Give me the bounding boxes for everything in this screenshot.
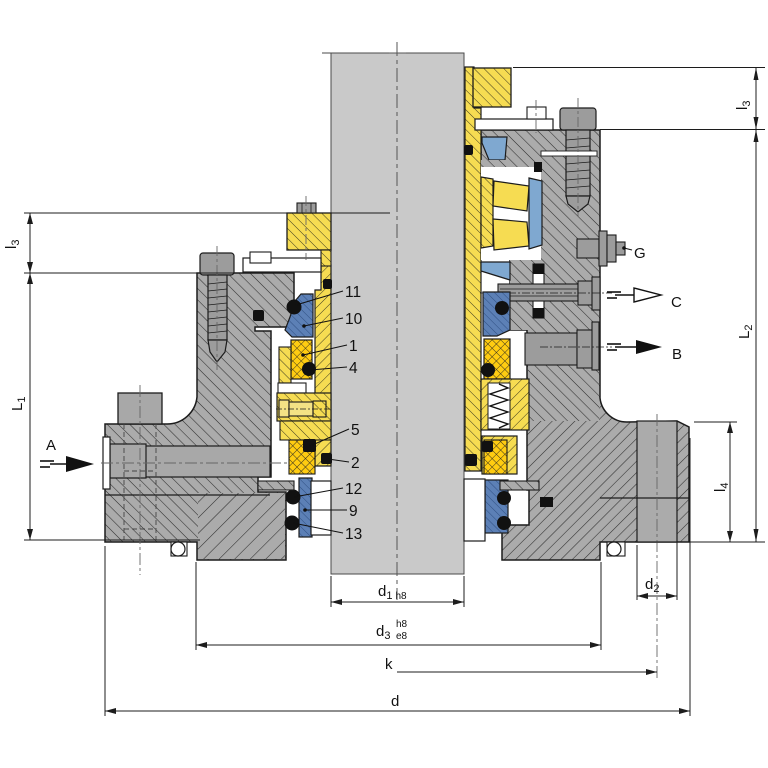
svg-text:d: d — [391, 693, 399, 710]
svg-text:11: 11 — [345, 284, 361, 301]
svg-text:2: 2 — [351, 455, 360, 472]
svg-text:C: C — [671, 294, 682, 311]
svg-text:A: A — [46, 437, 56, 454]
svg-text:k: k — [385, 656, 393, 673]
svg-text:9: 9 — [349, 503, 358, 520]
svg-text:G: G — [634, 245, 646, 262]
svg-text:10: 10 — [345, 311, 363, 328]
svg-text:13: 13 — [345, 526, 362, 543]
svg-text:e8: e8 — [396, 631, 408, 642]
svg-text:12: 12 — [345, 481, 362, 498]
svg-text:h8: h8 — [396, 619, 408, 630]
svg-text:4: 4 — [349, 360, 358, 377]
svg-text:B: B — [672, 346, 682, 363]
svg-text:5: 5 — [351, 422, 360, 439]
svg-text:1: 1 — [349, 338, 358, 355]
